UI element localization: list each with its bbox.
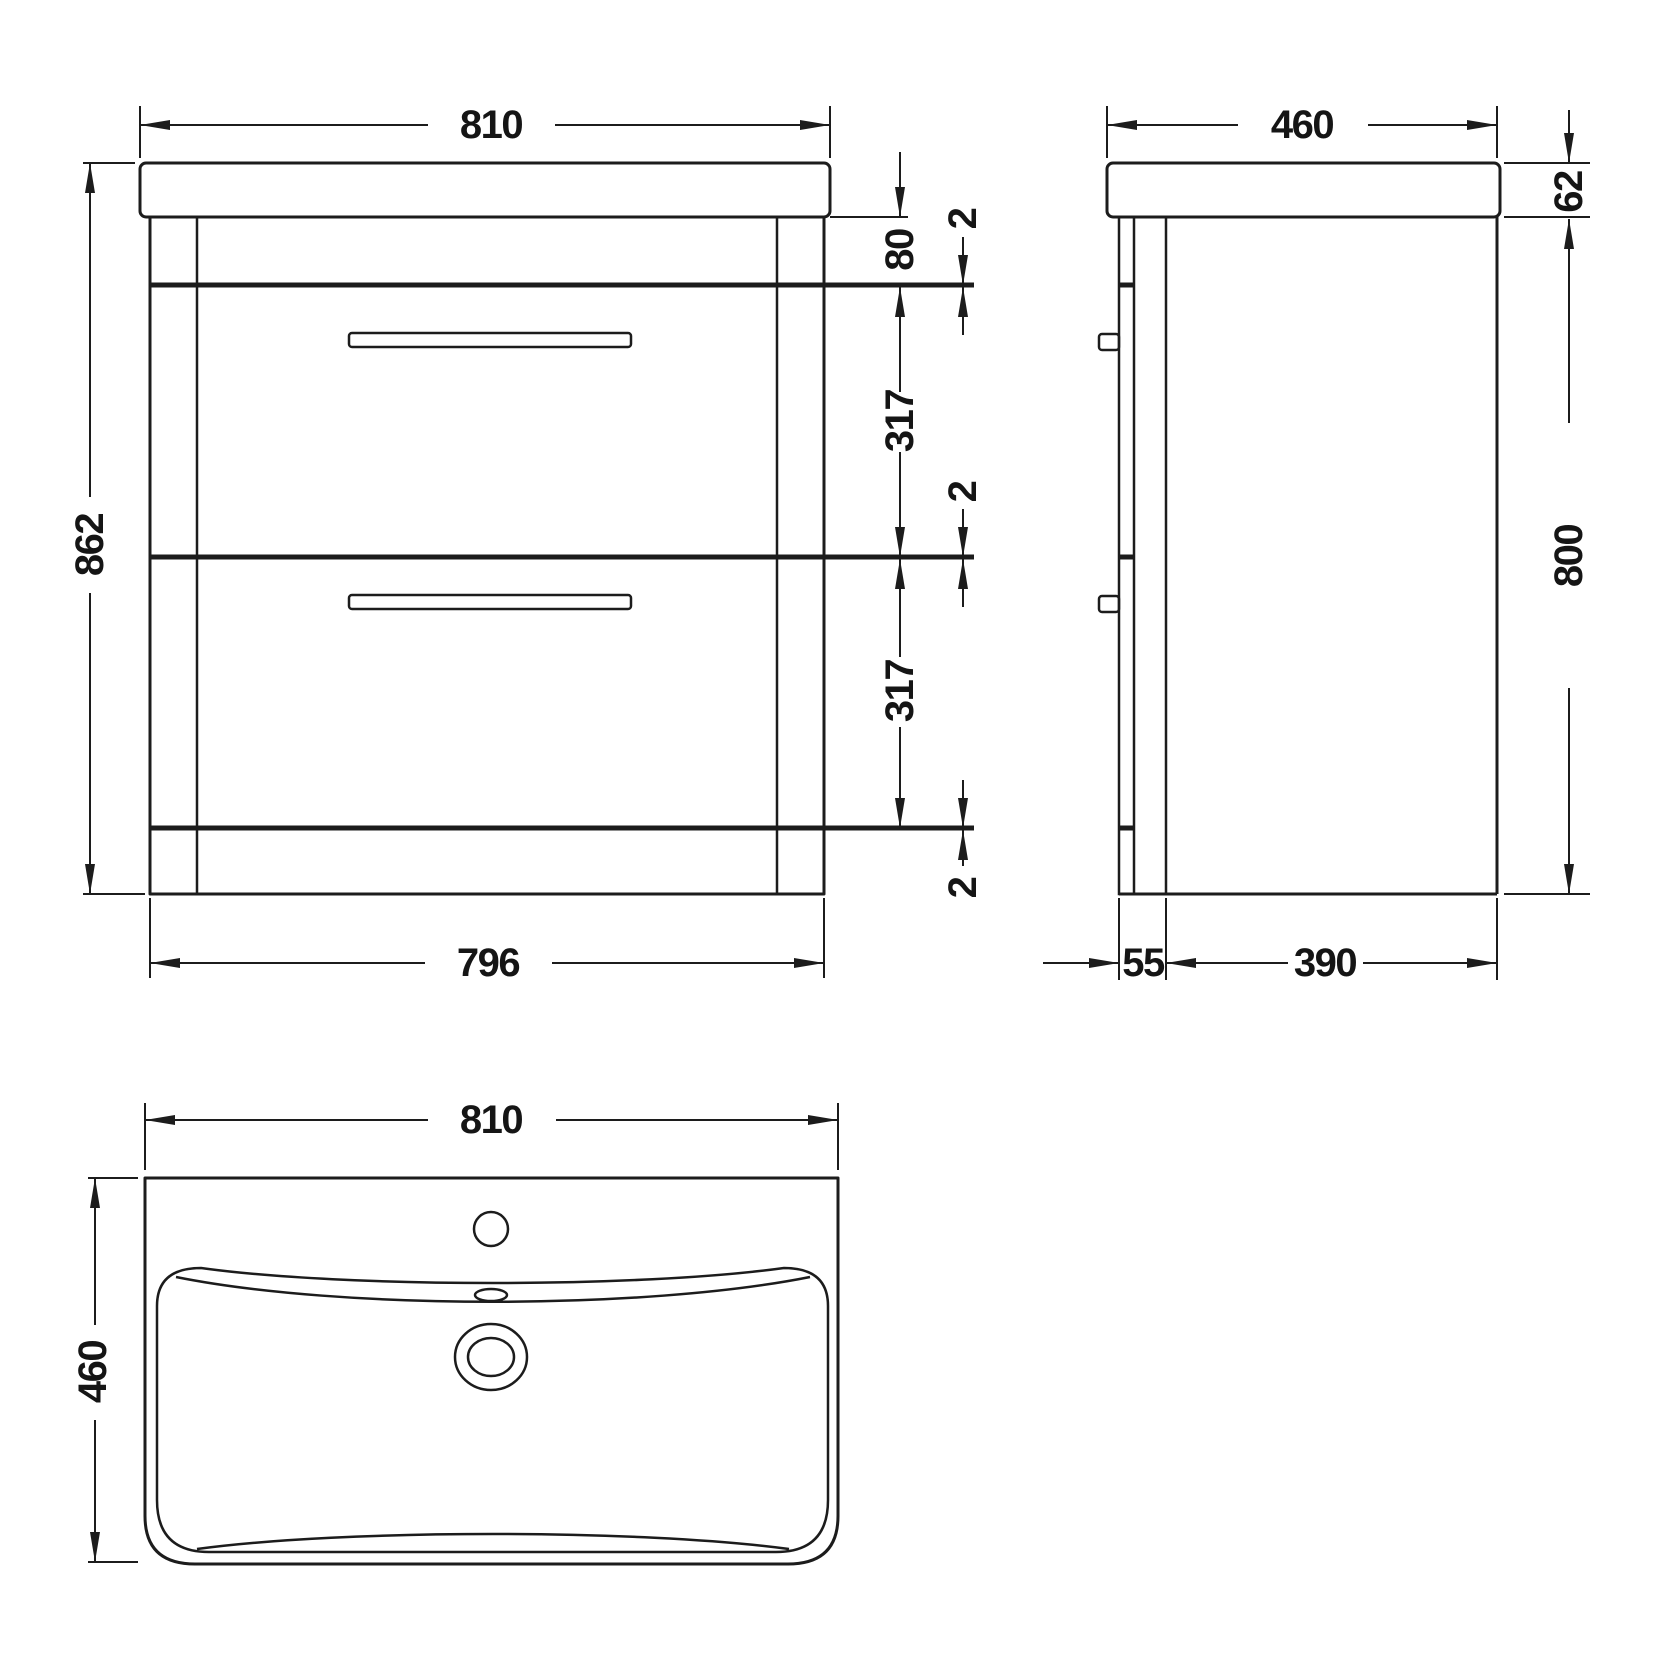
- dim-top-depth: 460: [71, 1178, 138, 1562]
- front-countertop: [140, 163, 830, 217]
- dim-front-width-bottom: 796: [150, 898, 824, 985]
- front-drawer2-handle: [349, 595, 631, 609]
- tap-hole: [474, 1212, 508, 1246]
- dim-label-top-rail: 80: [878, 229, 922, 271]
- overflow-hole: [475, 1289, 507, 1301]
- side-view: 460 62 800 55 390: [1043, 103, 1591, 985]
- dim-label-body-depth: 390: [1294, 941, 1356, 985]
- drawing-svg: 810 862 80 317 317 2 2: [0, 0, 1658, 1658]
- dim-top-width: 810: [145, 1098, 838, 1170]
- top-view: 810 460: [71, 1098, 838, 1564]
- dim-label-body-height: 800: [1547, 525, 1591, 587]
- dim-label-front-offset: 55: [1122, 941, 1165, 985]
- top-basin-rim-outline: [157, 1268, 828, 1552]
- side-countertop: [1107, 163, 1500, 217]
- side-handle-bottom: [1099, 596, 1119, 612]
- dim-label-top-width: 810: [460, 1098, 522, 1142]
- dim-front-right-chain: 80 317 317: [830, 152, 922, 828]
- dim-side-depth: 460: [1107, 103, 1497, 158]
- dim-label-drawer1: 317: [878, 390, 922, 452]
- dim-label-side-depth: 460: [1271, 103, 1333, 147]
- dim-side-bottom: 55 390: [1043, 898, 1497, 985]
- dim-label-top-depth: 460: [71, 1341, 115, 1403]
- top-bowl-front-curve: [197, 1534, 789, 1549]
- dim-label-gap-top: 2: [941, 208, 985, 229]
- side-handle-top: [1099, 334, 1119, 350]
- technical-drawing: 810 862 80 317 317 2 2: [0, 0, 1658, 1658]
- dim-label-front-width-bottom: 796: [457, 941, 519, 985]
- front-view: 810 862 80 317 317 2 2: [68, 103, 985, 985]
- drain-inner-ring: [468, 1338, 514, 1376]
- front-drawer1-handle: [349, 333, 631, 347]
- dim-front-gaps: 2 2 2: [941, 208, 985, 898]
- dim-front-height: 862: [68, 163, 145, 894]
- dim-label-counter-thickness: 62: [1547, 171, 1591, 213]
- dim-side-right-chain: 62 800: [1504, 110, 1591, 894]
- dim-label-front-width-top: 810: [460, 103, 522, 147]
- dim-label-front-height: 862: [68, 514, 112, 576]
- drain-outer-ring: [455, 1324, 527, 1390]
- dim-front-width-top: 810: [140, 103, 830, 158]
- top-countertop-outline: [145, 1178, 838, 1564]
- dim-label-drawer2: 317: [878, 660, 922, 722]
- dim-label-gap-bottom: 2: [941, 877, 985, 898]
- dim-label-gap-mid: 2: [941, 481, 985, 502]
